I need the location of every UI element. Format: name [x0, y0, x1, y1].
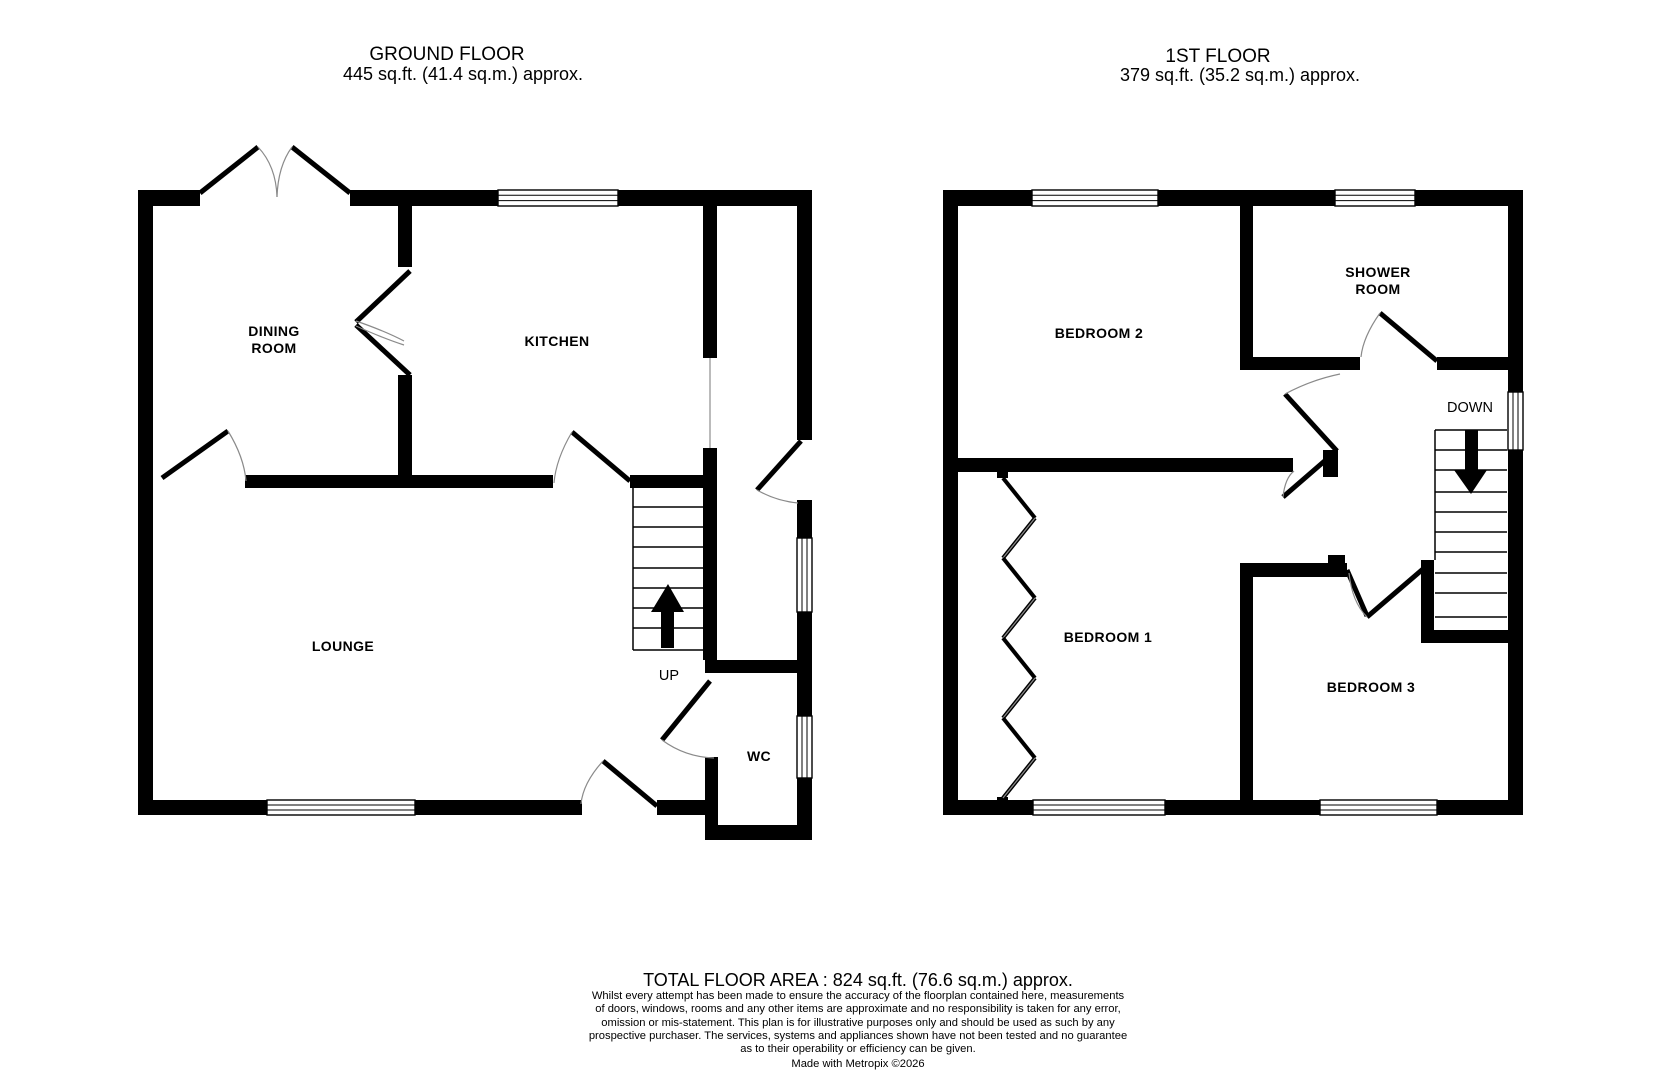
- door-swing-arc: [228, 431, 246, 481]
- wall-segment: [943, 190, 958, 815]
- wall-segment: [997, 468, 1008, 478]
- first-floor-windows: [1032, 190, 1523, 815]
- wall-segment: [1508, 190, 1523, 392]
- room-label-bedroom3: BEDROOM 3: [1327, 679, 1415, 695]
- wall-segment: [997, 797, 1008, 807]
- wall-segment: [958, 458, 1293, 472]
- plan-line: [200, 147, 258, 193]
- wall-segment: [797, 538, 812, 612]
- wall-segment: [618, 190, 812, 206]
- wall-segment: [797, 190, 812, 440]
- wall-segment: [1328, 555, 1345, 577]
- wall-segment: [703, 448, 717, 660]
- bedroom1-wardrobe-doors: [997, 468, 1035, 807]
- wall-segment: [1437, 800, 1523, 815]
- room-label-bedroom2: BEDROOM 2: [1055, 325, 1143, 341]
- first-floor-title: 1ST FLOOR: [1165, 46, 1270, 67]
- wall-segment: [1465, 430, 1478, 470]
- window: [797, 538, 812, 612]
- plan-line: [1003, 638, 1035, 678]
- wall-segment: [1508, 450, 1523, 815]
- window: [1508, 392, 1523, 450]
- shower-room-door: [1361, 313, 1437, 361]
- wall-segment: [1415, 190, 1523, 206]
- wall-segment: [350, 190, 498, 206]
- wall-segment: [267, 800, 415, 815]
- window: [1032, 190, 1158, 206]
- door-swing-arc: [757, 490, 798, 503]
- credit-line: Made with Metropix ©2026: [791, 1058, 924, 1070]
- wall-segment: [943, 800, 1033, 815]
- ground-floor-windows: [267, 190, 812, 815]
- wall-segment: [797, 716, 812, 778]
- wall-segment: [1158, 190, 1335, 206]
- first-floor-plan: 1ST FLOOR 379 sq.ft. (35.2 sq.m.) approx…: [943, 46, 1523, 815]
- door-swing-arc: [1003, 518, 1035, 558]
- wall-segment: [1421, 630, 1508, 643]
- wall-segment: [1253, 357, 1360, 370]
- door-swing-arc: [1285, 374, 1340, 394]
- room-label-wc: WC: [747, 748, 771, 764]
- wall-segment: [138, 190, 153, 815]
- door-swing-arc: [277, 147, 292, 197]
- disclaimer-line: omission or mis-statement. This plan is …: [601, 1017, 1115, 1029]
- disclaimer-line: Whilst every attempt has been made to en…: [592, 990, 1125, 1002]
- plan-line: [1003, 718, 1035, 758]
- staircase-down: DOWN: [1435, 400, 1507, 617]
- disclaimer-line: of doors, windows, rooms and any other i…: [595, 1003, 1120, 1015]
- room-label-dining-line1: DINING: [248, 323, 299, 339]
- room-label-bedroom1: BEDROOM 1: [1064, 629, 1152, 645]
- plan-line: [757, 441, 801, 490]
- wall-segment: [661, 612, 674, 648]
- window: [1335, 190, 1415, 206]
- plan-line: [1003, 558, 1035, 598]
- room-label-kitchen: KITCHEN: [524, 333, 589, 349]
- room-label-shower-line2: ROOM: [1355, 281, 1400, 297]
- dining-kitchen-double-door: [356, 271, 410, 375]
- plan-line: [1367, 569, 1423, 617]
- entrance-double-door: [200, 147, 350, 197]
- plan-line: [1285, 394, 1337, 451]
- staircase-up: UP: [633, 488, 703, 684]
- wall-segment: [1033, 800, 1165, 815]
- plan-line: [662, 681, 710, 740]
- total-floor-area: TOTAL FLOOR AREA : 824 sq.ft. (76.6 sq.m…: [643, 970, 1073, 990]
- floorplan-page: GROUND FLOOR 445 sq.ft. (41.4 sq.m.) app…: [0, 0, 1663, 1080]
- back-door: [581, 761, 657, 806]
- plan-line: [1003, 478, 1035, 518]
- door-swing-arc: [1003, 678, 1035, 718]
- footer: TOTAL FLOOR AREA : 824 sq.ft. (76.6 sq.m…: [589, 970, 1127, 1070]
- wall-segment: [630, 475, 712, 488]
- wall-segment: [797, 500, 812, 538]
- door-swing-arc: [662, 740, 714, 758]
- plan-line: [292, 147, 350, 193]
- bedroom3-door: [1347, 569, 1423, 617]
- disclaimer-line: prospective purchaser. The services, sys…: [589, 1030, 1127, 1042]
- first-floor-doors: [997, 313, 1437, 807]
- kitchen-door: [554, 432, 630, 483]
- wall-segment: [245, 475, 553, 488]
- wall-segment: [943, 190, 1032, 206]
- wall-segment: [1335, 190, 1415, 206]
- window: [1033, 800, 1165, 815]
- arrow-shape: [1454, 470, 1487, 494]
- room-label-lounge: LOUNGE: [312, 638, 374, 654]
- door-swing-arc: [1361, 313, 1380, 357]
- door-swing-arc: [1003, 598, 1035, 638]
- room-label-shower-line1: SHOWER: [1345, 264, 1410, 280]
- plan-line: [356, 325, 410, 375]
- wall-segment: [1032, 190, 1158, 206]
- door-swing-arc: [1003, 758, 1035, 798]
- wall-segment: [1320, 800, 1437, 815]
- window: [498, 190, 618, 206]
- wall-segment: [703, 206, 717, 358]
- wall-segment: [138, 190, 200, 206]
- ground-floor-walls: [138, 190, 812, 840]
- plan-line: [356, 271, 410, 322]
- wall-segment: [1508, 392, 1523, 450]
- wall-segment: [705, 825, 812, 840]
- door-swing-arc: [554, 432, 572, 483]
- disclaimer-line: as to their operability or efficiency ca…: [740, 1043, 975, 1055]
- stairs-up-label: UP: [659, 668, 679, 684]
- wall-segment: [1240, 563, 1253, 803]
- wall-segment: [1437, 357, 1508, 370]
- stairs-down-label: DOWN: [1447, 400, 1493, 416]
- up-arrow-icon: [651, 584, 684, 648]
- wall-segment: [705, 660, 812, 673]
- wall-segment: [398, 375, 412, 488]
- window: [797, 716, 812, 778]
- wall-segment: [398, 206, 412, 267]
- door-swing-arc: [581, 761, 603, 804]
- wall-segment: [1240, 206, 1253, 370]
- down-arrow-icon: [1454, 430, 1487, 494]
- plan-line: [1380, 313, 1437, 361]
- plan-line: [572, 432, 630, 481]
- wc-door: [662, 681, 714, 758]
- plan-line: [603, 761, 657, 806]
- room-label-dining-line2: ROOM: [251, 340, 296, 356]
- first-floor-area: 379 sq.ft. (35.2 sq.m.) approx.: [1120, 65, 1360, 85]
- wall-segment: [498, 190, 618, 206]
- door-swing-arc: [258, 147, 277, 197]
- ground-floor-plan: GROUND FLOOR 445 sq.ft. (41.4 sq.m.) app…: [138, 44, 812, 840]
- ground-floor-title: GROUND FLOOR: [369, 44, 524, 65]
- plan-line: [162, 431, 228, 478]
- floorplan-canvas: GROUND FLOOR 445 sq.ft. (41.4 sq.m.) app…: [0, 0, 1663, 1080]
- ground-floor-area: 445 sq.ft. (41.4 sq.m.) approx.: [343, 64, 583, 84]
- window: [1320, 800, 1437, 815]
- first-floor-walls: [943, 190, 1523, 815]
- bedroom2-door: [1285, 374, 1340, 451]
- window: [267, 800, 415, 815]
- front-door: [757, 441, 801, 503]
- door-swing-arc: [356, 326, 404, 345]
- lounge-door: [162, 431, 246, 481]
